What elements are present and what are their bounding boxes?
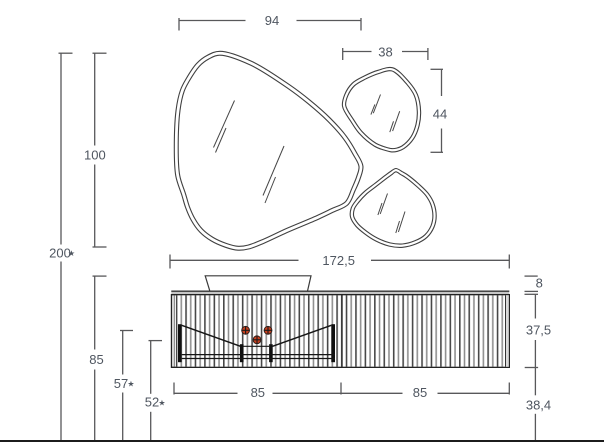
svg-text:85: 85	[89, 352, 103, 367]
svg-text:100: 100	[84, 147, 106, 162]
svg-text:8: 8	[536, 275, 543, 290]
svg-text:172,5: 172,5	[322, 253, 355, 268]
svg-text:57: 57	[114, 376, 128, 391]
svg-text:44: 44	[433, 107, 447, 122]
svg-text:52: 52	[145, 395, 159, 410]
svg-text:94: 94	[265, 13, 279, 28]
svg-text:85: 85	[413, 385, 427, 400]
svg-text:★: ★	[127, 379, 134, 388]
svg-text:★: ★	[158, 398, 165, 407]
svg-text:85: 85	[251, 385, 265, 400]
svg-text:38,4: 38,4	[526, 397, 551, 412]
svg-text:38: 38	[378, 44, 392, 59]
svg-text:37,5: 37,5	[526, 323, 551, 338]
svg-text:★: ★	[68, 249, 75, 258]
